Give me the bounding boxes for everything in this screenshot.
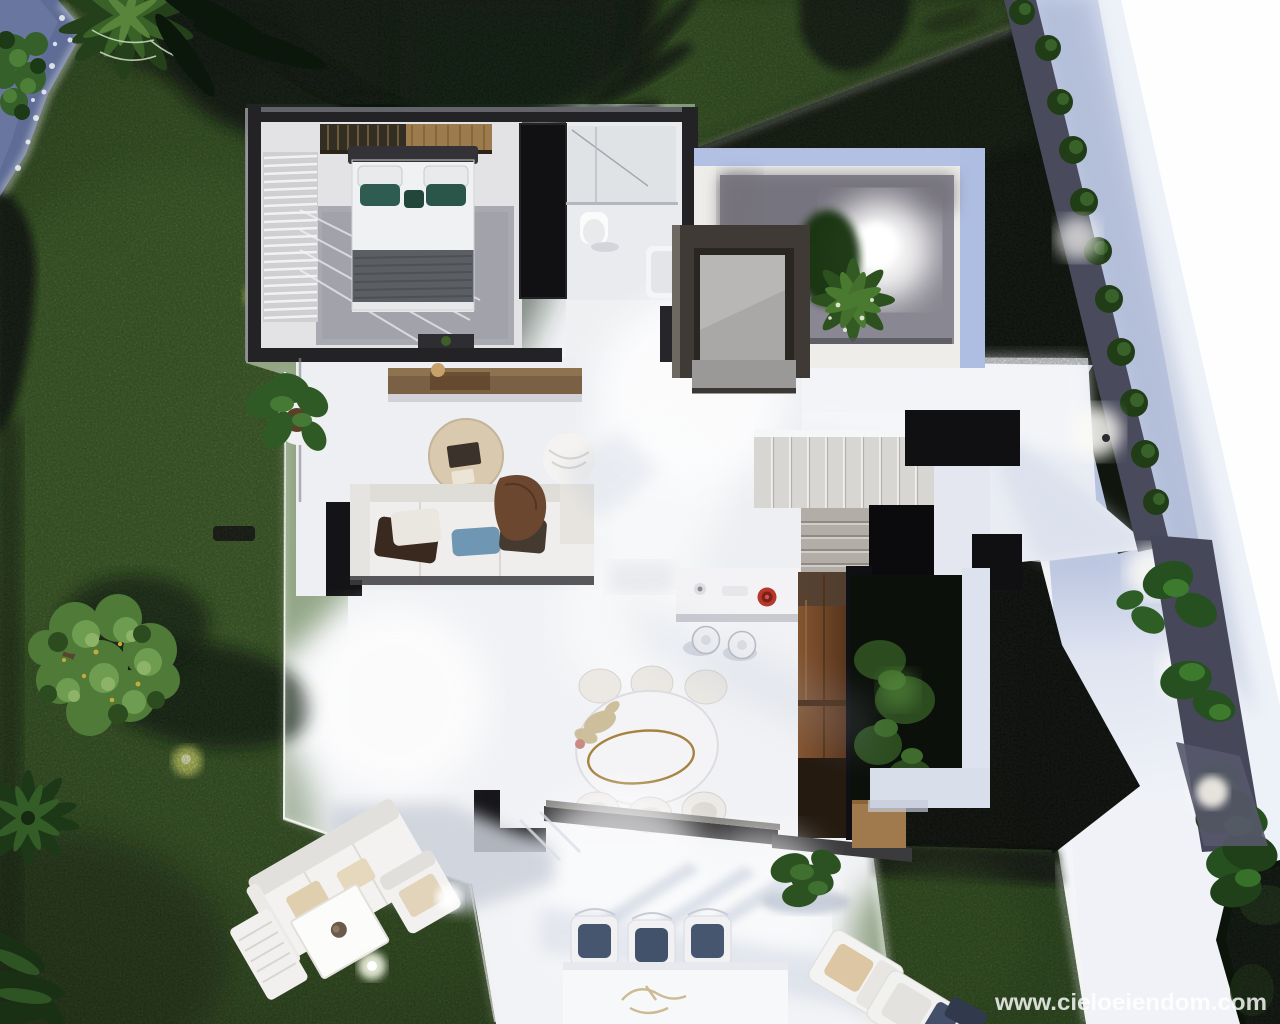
svg-text:www.cieloeiendom.com: www.cieloeiendom.com (994, 989, 1267, 1015)
